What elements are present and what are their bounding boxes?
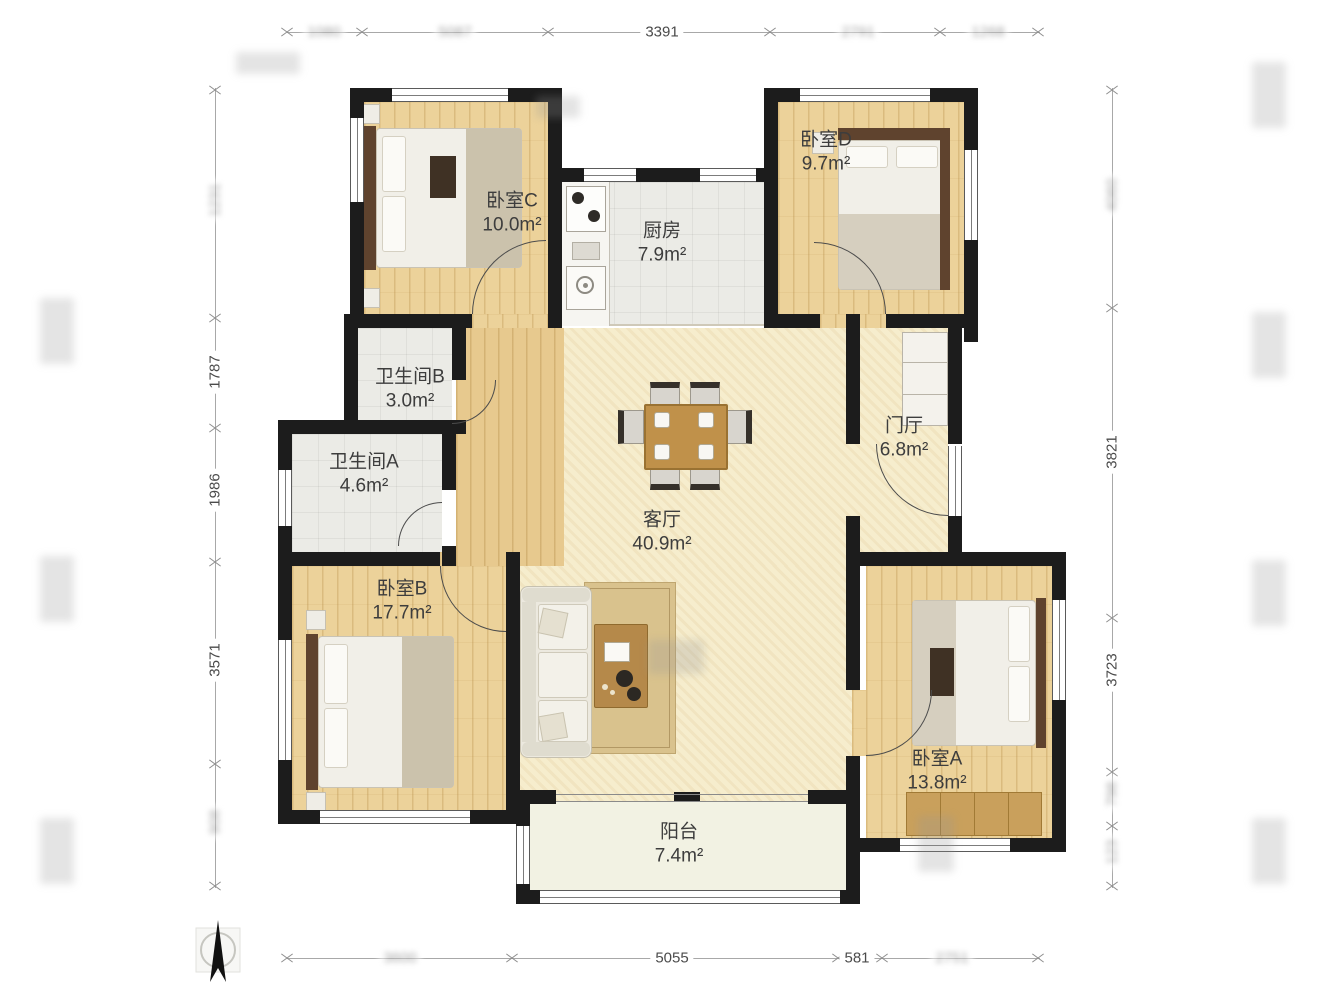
watermark [236,52,300,74]
watermark [1252,312,1286,378]
window [800,88,930,102]
room-label-living-room: 客厅 40.9m² [632,508,691,556]
window [900,838,1010,852]
dim-label: 1268 [966,24,1009,41]
room-area: 13.8m² [907,771,966,795]
window [278,640,292,760]
wall [948,314,962,444]
watermark [536,96,580,118]
window [516,826,530,884]
dim-tick [934,26,946,38]
watermark [1252,560,1286,626]
dim-label: 3723 [1104,648,1121,691]
bed-headboard [1036,598,1046,748]
tray [604,642,630,662]
window [1052,600,1066,700]
counter-appliance [572,242,600,260]
dim-tick [209,84,221,96]
bed-headboard [306,634,318,790]
wall [1052,552,1066,852]
dim-tick [876,952,888,964]
doorway-patch [852,690,866,756]
watermark [40,818,74,884]
dim-label: 3821 [1104,430,1121,473]
pillow [1008,666,1030,722]
dim-label: 798 [1104,776,1121,811]
stove-burner [588,210,600,222]
sofa-cushion [538,652,588,698]
dim-label: 3571 [207,638,224,681]
dim-label: 581 [839,950,874,967]
pillow [1008,606,1030,662]
room-name: 卧室D [800,128,852,152]
wall [548,88,562,328]
room-area: 9.7m² [800,152,852,176]
bed-headboard [838,128,950,140]
dim-label: 908 [207,804,224,839]
window [278,470,292,526]
bed-side-rail [940,140,950,290]
closet-panel-line [902,394,948,395]
dim-tick [1032,952,1044,964]
dim-tick [1106,302,1118,314]
wall [764,88,778,328]
dim-tick [506,952,518,964]
hallway-floor [456,328,564,566]
dim-tick [1106,820,1118,832]
wall [278,552,440,566]
dim-tick [1032,26,1044,38]
foyer-closet [902,332,948,426]
wardrobe-door-line [1008,792,1009,836]
window [540,890,840,904]
place-setting [654,444,670,460]
room-name: 卫生间B [375,365,445,389]
dim-tick [209,556,221,568]
pillow [896,146,938,168]
dim-tick [209,758,221,770]
dim-tick [209,422,221,434]
sofa-pillow [538,608,569,639]
dim-label: 2791 [836,24,879,41]
nightstand [306,792,326,812]
room-label-bedroom-d: 卧室D 9.7m² [800,128,852,176]
decor-bowl [627,687,641,701]
dining-chair [726,410,752,444]
entry-door-panel [948,446,962,516]
nightstand [306,610,326,630]
bed-blanket [402,637,453,787]
pillow [846,146,888,168]
wall [278,420,466,434]
watermark [1252,62,1286,128]
room-name: 卫生间A [329,450,399,474]
sofa-pillow [538,712,568,742]
dim-label: 3600 [378,950,421,967]
room-name: 客厅 [632,508,691,532]
sliding-door-track [556,794,808,802]
dim-label: 2751 [930,950,973,967]
sofa-armrest [522,588,590,602]
stove-burner [572,192,584,204]
room-area: 3.0m² [375,389,445,413]
dim-label: 1080 [302,24,345,41]
dim-label: 4060 [1104,173,1121,216]
dim-tick [281,26,293,38]
dim-tick [209,880,221,892]
wall [442,434,456,490]
room-name: 门厅 [880,414,929,438]
wall [344,314,358,434]
pillow [382,136,406,192]
room-name: 卧室C [482,189,541,213]
watermark [40,556,74,622]
room-name: 卧室B [372,577,431,601]
wardrobe-door-line [974,792,975,836]
window [700,168,756,182]
window [320,810,470,824]
sofa-armrest [522,742,590,756]
dim-tick [1106,84,1118,96]
wall [452,314,466,380]
room-label-balcony: 阳台 7.4m² [655,820,704,868]
room-area: 7.4m² [655,844,704,868]
dim-tick [209,312,221,324]
wall [846,566,860,690]
room-label-bathroom-b: 卫生间B 3.0m² [375,365,445,413]
stove-icon [566,186,606,232]
dim-tick [281,952,293,964]
dim-label: 5055 [650,950,693,967]
window [584,168,636,182]
window [350,118,364,202]
dim-tick [542,26,554,38]
pillow [382,196,406,252]
closet-panel-line [902,362,948,363]
dim-label: 5087 [433,24,476,41]
dim-tick [1106,612,1118,624]
sofa-back [522,602,536,742]
decor-dot [610,690,615,695]
room-label-bathroom-a: 卫生间A 4.6m² [329,450,399,498]
pillow [324,644,348,704]
room-area: 4.6m² [329,474,399,498]
room-area: 40.9m² [632,532,691,556]
room-label-bedroom-b: 卧室B 17.7m² [372,577,431,625]
doorway-patch [472,314,548,328]
decor-dot [602,684,608,690]
bed-throw [430,156,456,198]
wall [764,314,820,328]
dim-tick [1106,880,1118,892]
room-name: 卧室A [907,747,966,771]
dim-tick [356,26,368,38]
wall [442,546,456,566]
wall [846,552,1066,566]
watermark [40,298,74,364]
bed-headboard [364,126,376,270]
watermark [918,816,954,872]
wall [846,314,860,444]
room-area: 7.9m² [638,243,687,267]
sink-drain [583,283,588,288]
dining-chair [618,410,644,444]
compass-north-icon [188,916,248,992]
pillow [324,708,348,768]
room-name: 阳台 [655,820,704,844]
room-label-kitchen: 厨房 7.9m² [638,219,687,267]
place-setting [654,412,670,428]
wall [846,790,860,904]
floor-plan: 卧室C 10.0m² 厨房 7.9m² 卧室D 9.7m² 卫生间B 3.0m²… [0,0,1333,1000]
window [392,88,508,102]
watermark [1252,818,1286,884]
room-label-foyer: 门厅 6.8m² [880,414,929,462]
room-area: 10.0m² [482,213,541,237]
wall [506,552,520,824]
dim-label: 1231 [207,178,224,221]
dim-label: 123 [1104,834,1121,869]
place-setting [698,444,714,460]
room-name: 厨房 [638,219,687,243]
room-area: 6.8m² [880,438,929,462]
bed-throw [930,648,954,696]
dim-label: 3391 [640,24,683,41]
dim-tick [764,26,776,38]
dim-label: 1986 [207,468,224,511]
decor-bowl [616,670,633,687]
watermark [648,640,704,674]
room-label-bedroom-a: 卧室A 13.8m² [907,747,966,795]
window [964,150,978,240]
room-label-bedroom-c: 卧室C 10.0m² [482,189,541,237]
place-setting [698,412,714,428]
room-area: 17.7m² [372,601,431,625]
dim-label: 1787 [207,350,224,393]
